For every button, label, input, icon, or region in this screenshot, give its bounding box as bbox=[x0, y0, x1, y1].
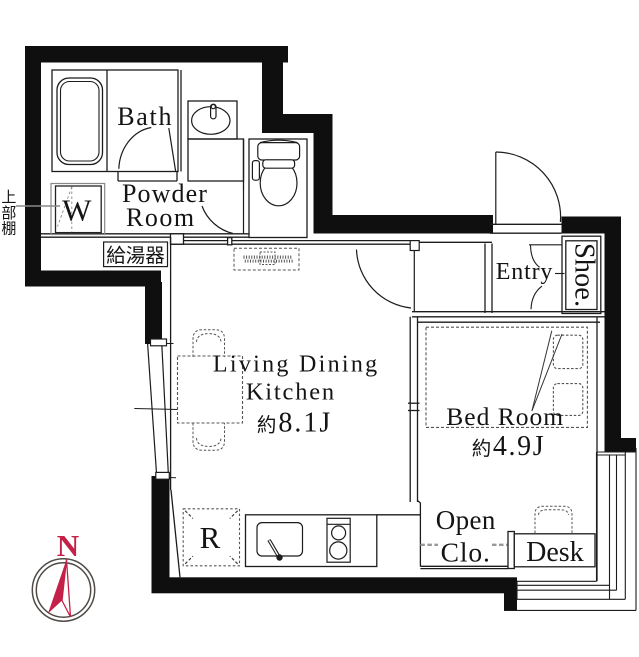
svg-text:Bath: Bath bbox=[117, 102, 173, 131]
svg-text:給湯器: 給湯器 bbox=[106, 245, 165, 267]
svg-text:Desk: Desk bbox=[526, 537, 584, 568]
svg-text:部: 部 bbox=[1, 205, 16, 222]
svg-text:Open: Open bbox=[436, 505, 496, 535]
svg-text:棚: 棚 bbox=[1, 221, 16, 238]
svg-text:Kitchen: Kitchen bbox=[246, 379, 336, 406]
svg-text:Clo.: Clo. bbox=[441, 537, 491, 568]
svg-text:上: 上 bbox=[1, 189, 16, 206]
svg-text:W: W bbox=[62, 192, 92, 227]
svg-text:R: R bbox=[200, 520, 221, 555]
svg-text:Living Dining: Living Dining bbox=[213, 352, 380, 378]
svg-text:Shoe.: Shoe. bbox=[569, 243, 600, 307]
svg-text:Bed Room: Bed Room bbox=[446, 402, 564, 431]
svg-text:Room: Room bbox=[126, 203, 196, 232]
svg-text:Entry: Entry bbox=[496, 259, 554, 285]
svg-text:N: N bbox=[57, 528, 79, 563]
